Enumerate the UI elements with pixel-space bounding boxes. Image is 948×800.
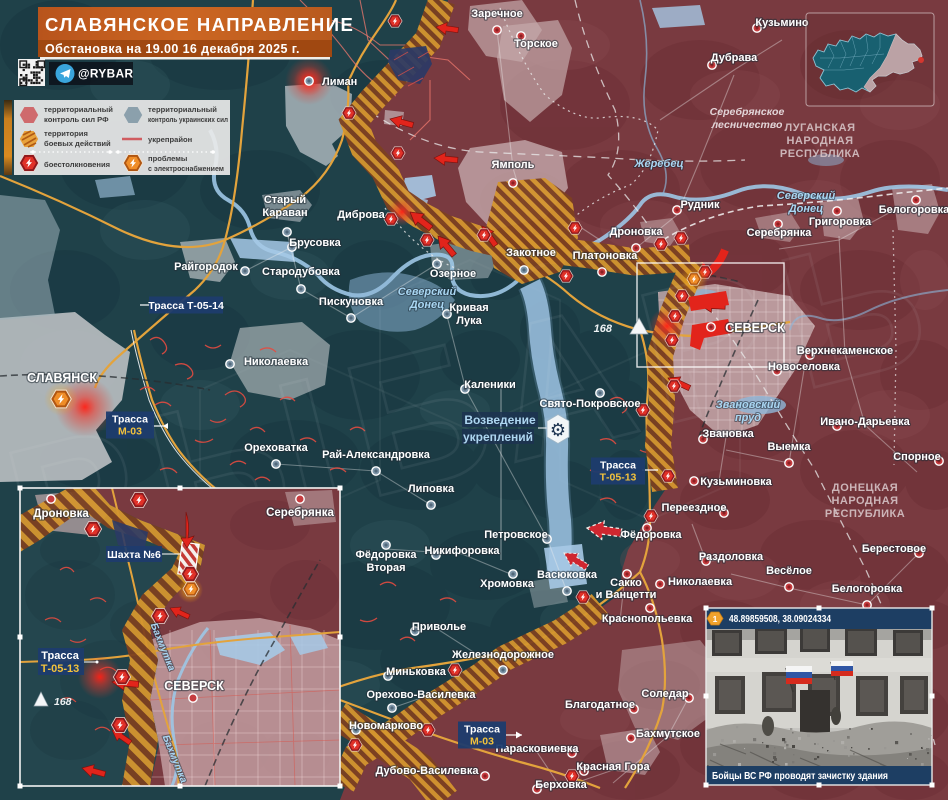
svg-text:168: 168 <box>54 696 72 708</box>
svg-text:Серебрянка: Серебрянка <box>266 507 334 519</box>
svg-text:@RYBAR: @RYBAR <box>78 67 133 81</box>
svg-text:Белогоровка: Белогоровка <box>832 583 903 595</box>
svg-text:Северский: Северский <box>398 286 457 298</box>
svg-text:Пискуновка: Пискуновка <box>319 296 384 308</box>
svg-text:Бахмутское: Бахмутское <box>636 728 700 740</box>
svg-text:Караван: Караван <box>262 207 307 219</box>
svg-text:Хромовка: Хромовка <box>480 578 535 590</box>
svg-text:Вторая: Вторая <box>366 562 405 574</box>
svg-text:Спорное: Спорное <box>893 451 941 463</box>
svg-text:Дубово-Василевка: Дубово-Василевка <box>376 765 480 777</box>
svg-text:Шахта №6: Шахта №6 <box>107 549 161 561</box>
svg-text:Трасса: Трасса <box>464 724 500 736</box>
svg-text:Железнодорожное: Железнодорожное <box>451 649 554 661</box>
svg-text:Выемка: Выемка <box>767 441 811 453</box>
svg-text:М-03: М-03 <box>470 736 494 748</box>
svg-text:Т-05-13: Т-05-13 <box>41 663 80 675</box>
svg-text:Лука: Лука <box>456 315 482 327</box>
svg-text:Парасковиевка: Парасковиевка <box>495 743 579 755</box>
svg-text:Григоровка: Григоровка <box>809 216 872 228</box>
svg-text:Звановка: Звановка <box>702 428 754 440</box>
svg-text:Заречное: Заречное <box>471 8 522 20</box>
svg-text:СЕВЕРСК: СЕВЕРСК <box>725 321 785 335</box>
svg-text:Соледар: Соледар <box>641 688 688 700</box>
svg-text:Каленики: Каленики <box>464 379 516 391</box>
svg-text:Возведение: Возведение <box>464 413 536 427</box>
svg-text:Берховка: Берховка <box>535 779 587 791</box>
svg-text:боестолкновения: боестолкновения <box>44 160 110 169</box>
svg-text:Берестовое: Берестовое <box>862 543 926 555</box>
svg-text:Жеребец: Жеребец <box>633 158 683 170</box>
svg-text:с электроснабжением: с электроснабжением <box>148 164 224 173</box>
svg-text:Петровское: Петровское <box>484 529 548 541</box>
svg-text:Верхнекаменское: Верхнекаменское <box>797 345 893 357</box>
svg-text:укреплений: укреплений <box>463 430 533 444</box>
svg-text:Лиман: Лиман <box>322 76 357 88</box>
svg-text:НАРОДНАЯ: НАРОДНАЯ <box>831 495 898 507</box>
svg-text:Белогоровка: Белогоровка <box>879 204 948 216</box>
svg-text:Ореховатка: Ореховатка <box>244 442 308 454</box>
svg-text:Кузьмино: Кузьмино <box>755 17 808 29</box>
svg-text:Краснопольевка: Краснопольевка <box>602 613 693 625</box>
svg-text:Никифоровка: Никифоровка <box>425 545 501 557</box>
svg-text:Красная Гора: Красная Гора <box>576 761 650 773</box>
svg-text:Серебрянское: Серебрянское <box>710 106 785 118</box>
svg-text:боевых действий: боевых действий <box>44 139 111 148</box>
svg-text:Звановский: Звановский <box>716 399 781 411</box>
svg-text:Северский: Северский <box>777 190 836 202</box>
svg-text:Фёдоровка: Фёдоровка <box>355 549 417 561</box>
svg-text:Рудник: Рудник <box>680 199 720 211</box>
svg-text:Дроновка: Дроновка <box>609 226 663 238</box>
svg-text:Донец: Донец <box>788 203 824 215</box>
svg-text:ЛУГАНСКАЯ: ЛУГАНСКАЯ <box>785 122 856 134</box>
svg-text:Озерное: Озерное <box>430 268 476 280</box>
svg-text:Райгородок: Райгородок <box>174 261 238 273</box>
svg-text:контроль сил РФ: контроль сил РФ <box>44 115 109 124</box>
svg-text:Приволье: Приволье <box>412 621 466 633</box>
svg-text:Липовка: Липовка <box>408 483 455 495</box>
svg-text:Сакко: Сакко <box>610 577 642 589</box>
svg-text:М-03: М-03 <box>118 426 142 438</box>
svg-text:Брусовка: Брусовка <box>289 237 341 249</box>
svg-text:48.89859508, 38.09024334: 48.89859508, 38.09024334 <box>729 614 831 625</box>
svg-text:Донец: Донец <box>409 299 445 311</box>
svg-text:Ивано-Дарьевка: Ивано-Дарьевка <box>820 416 910 428</box>
svg-text:Трасса: Трасса <box>41 650 80 662</box>
svg-text:Миньковка: Миньковка <box>386 666 447 678</box>
svg-text:Кузьминовка: Кузьминовка <box>700 476 772 488</box>
svg-text:СЛАВЯНСК: СЛАВЯНСК <box>27 371 97 385</box>
svg-text:Трасса: Трасса <box>112 414 148 426</box>
svg-text:Благодатное: Благодатное <box>565 699 635 711</box>
svg-text:Кривая: Кривая <box>449 302 488 314</box>
svg-text:Бойцы ВС РФ проводят зачистку: Бойцы ВС РФ проводят зачистку здания <box>712 771 888 782</box>
svg-text:территориальный: территориальный <box>148 105 217 114</box>
svg-text:Васюковка: Васюковка <box>537 569 598 581</box>
svg-text:НАРОДНАЯ: НАРОДНАЯ <box>786 135 853 147</box>
svg-text:Раздоловка: Раздоловка <box>699 551 764 563</box>
svg-text:Переездное: Переездное <box>662 502 727 514</box>
svg-text:Закотное: Закотное <box>506 247 556 259</box>
svg-text:укрепрайон: укрепрайон <box>148 135 193 144</box>
svg-text:Рай-Александровка: Рай-Александровка <box>322 449 431 461</box>
svg-text:Т-05-13: Т-05-13 <box>600 472 637 484</box>
svg-text:Трасса Т-05-14: Трасса Т-05-14 <box>148 300 224 312</box>
svg-text:пруд: пруд <box>735 412 761 424</box>
svg-text:Фёдоровка: Фёдоровка <box>620 529 682 541</box>
svg-text:Платоновка: Платоновка <box>573 250 639 262</box>
svg-text:Новомарково: Новомарково <box>349 720 423 732</box>
svg-text:Диброва: Диброва <box>337 209 385 221</box>
svg-text:Трасса: Трасса <box>600 460 636 472</box>
svg-text:территориальный: территориальный <box>44 105 113 114</box>
svg-text:и Ванцетти: и Ванцетти <box>596 589 657 601</box>
svg-text:Старый: Старый <box>264 194 306 206</box>
svg-text:Торское: Торское <box>514 38 558 50</box>
svg-text:СЕВЕРСК: СЕВЕРСК <box>164 679 224 693</box>
svg-text:проблемы: проблемы <box>148 154 187 163</box>
svg-text:Стародубовка: Стародубовка <box>262 266 341 278</box>
svg-text:168: 168 <box>594 323 613 335</box>
svg-text:Весёлое: Весёлое <box>766 565 812 577</box>
svg-text:Николаевка: Николаевка <box>244 356 309 368</box>
svg-text:Свято-Покровское: Свято-Покровское <box>540 398 641 410</box>
svg-text:⚙: ⚙ <box>550 420 566 440</box>
svg-text:РЕСПУБЛИКА: РЕСПУБЛИКА <box>825 508 905 520</box>
svg-text:1: 1 <box>713 614 718 624</box>
svg-text:СЛАВЯНСКОЕ НАПРАВЛЕНИЕ: СЛАВЯНСКОЕ НАПРАВЛЕНИЕ <box>45 14 354 35</box>
svg-text:Обстановка на 19.00 16 декабря: Обстановка на 19.00 16 декабря 2025 г. <box>45 42 300 56</box>
svg-text:Дубрава: Дубрава <box>711 52 758 64</box>
svg-text:Дроновка: Дроновка <box>33 508 89 520</box>
svg-text:ДОНЕЦКАЯ: ДОНЕЦКАЯ <box>832 482 898 494</box>
svg-text:Николаевка: Николаевка <box>668 576 733 588</box>
svg-text:лесничество: лесничество <box>711 119 783 131</box>
svg-text:Серебрянка: Серебрянка <box>747 227 813 239</box>
svg-text:контроль украинских сил: контроль украинских сил <box>148 115 228 124</box>
svg-text:Орехово-Василевка: Орехово-Василевка <box>366 689 476 701</box>
svg-text:Новоселовка: Новоселовка <box>768 361 841 373</box>
svg-text:РЕСПУБЛИКА: РЕСПУБЛИКА <box>780 148 860 160</box>
svg-text:Ямполь: Ямполь <box>492 159 535 171</box>
svg-text:территория: территория <box>44 129 88 138</box>
